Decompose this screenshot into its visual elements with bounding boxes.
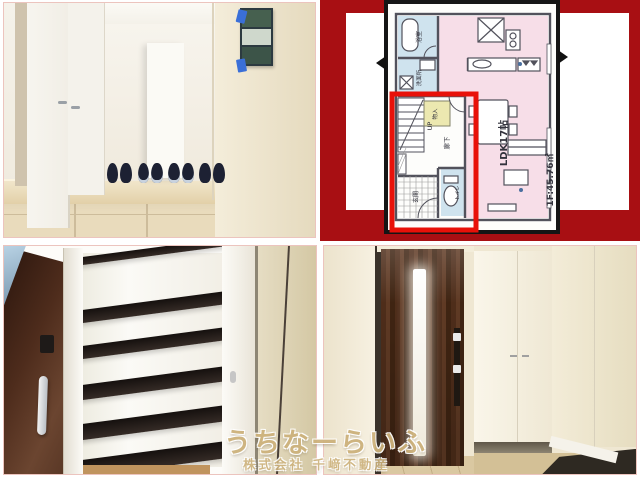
door-lock-keypad [40, 335, 54, 353]
shoe [151, 163, 163, 183]
label-bath: 浴室 [415, 31, 423, 43]
shoe-pair [138, 163, 164, 183]
label-storage: 物入 [431, 108, 439, 120]
closet-handle-icon [71, 106, 80, 109]
shoe-pair [107, 163, 133, 183]
label-area: 1F:45.76㎡ [544, 154, 556, 207]
closet-door-right [68, 3, 105, 195]
wall-edge-strip [15, 3, 27, 186]
company-watermark: 株式会社 千﨑不動産 [243, 454, 390, 473]
real-estate-photo-collage: LDK17帖 1F:45.76㎡ UP 廊下 浴室 洗面所 玄関 トイレ 物入 [0, 0, 640, 480]
label-up: UP [426, 122, 434, 131]
label-toilet: トイレ [455, 185, 461, 200]
under-cabinet-shadow [474, 442, 552, 453]
closet-handle-icon [230, 371, 236, 383]
hall-partition-wall [147, 43, 184, 179]
shoe [199, 163, 211, 183]
floor-plan-panel: LDK17帖 1F:45.76㎡ UP 廊下 浴室 洗面所 玄関 トイレ 物入 [320, 0, 640, 241]
door-lock [453, 333, 461, 341]
plan-stairs [398, 98, 424, 152]
cabinet-seam [517, 251, 518, 443]
flyer-photo-row [242, 47, 271, 64]
shoe [107, 163, 119, 183]
plan-marker-dot [519, 188, 523, 192]
shoe [120, 163, 132, 183]
label-entrance: 玄関 [412, 191, 420, 203]
shoe [213, 163, 225, 183]
door-lock [453, 365, 461, 373]
shoe [182, 163, 194, 183]
label-hallway: 廊下 [442, 136, 451, 150]
closet-door-left [27, 3, 69, 228]
shoe [168, 163, 180, 183]
shoe-pair [199, 163, 225, 183]
shoe-pair [168, 163, 194, 183]
cabinet-handle-icon [510, 355, 517, 357]
shoe-cabinet-far [552, 246, 636, 447]
flyer-photo-row [242, 29, 271, 46]
photo-entrance-hall [3, 2, 316, 238]
floor-sliver [79, 465, 210, 474]
label-ldk: LDK17帖 [497, 120, 510, 166]
label-washroom: 洗面所 [415, 69, 423, 86]
shoe-cabinet-near [474, 251, 552, 443]
floor-plan: LDK17帖 1F:45.76㎡ UP 廊下 浴室 洗面所 玄関 トイレ 物入 [320, 0, 640, 241]
shoe [138, 163, 150, 183]
cabinet-handle-icon [522, 355, 529, 357]
plan-marker-dot [518, 62, 522, 66]
blue-tape [236, 58, 247, 72]
shoes-row [107, 163, 225, 183]
closet-handle-icon [58, 101, 67, 104]
cabinet-seam [594, 246, 595, 447]
open-closet-door-left [63, 248, 83, 474]
